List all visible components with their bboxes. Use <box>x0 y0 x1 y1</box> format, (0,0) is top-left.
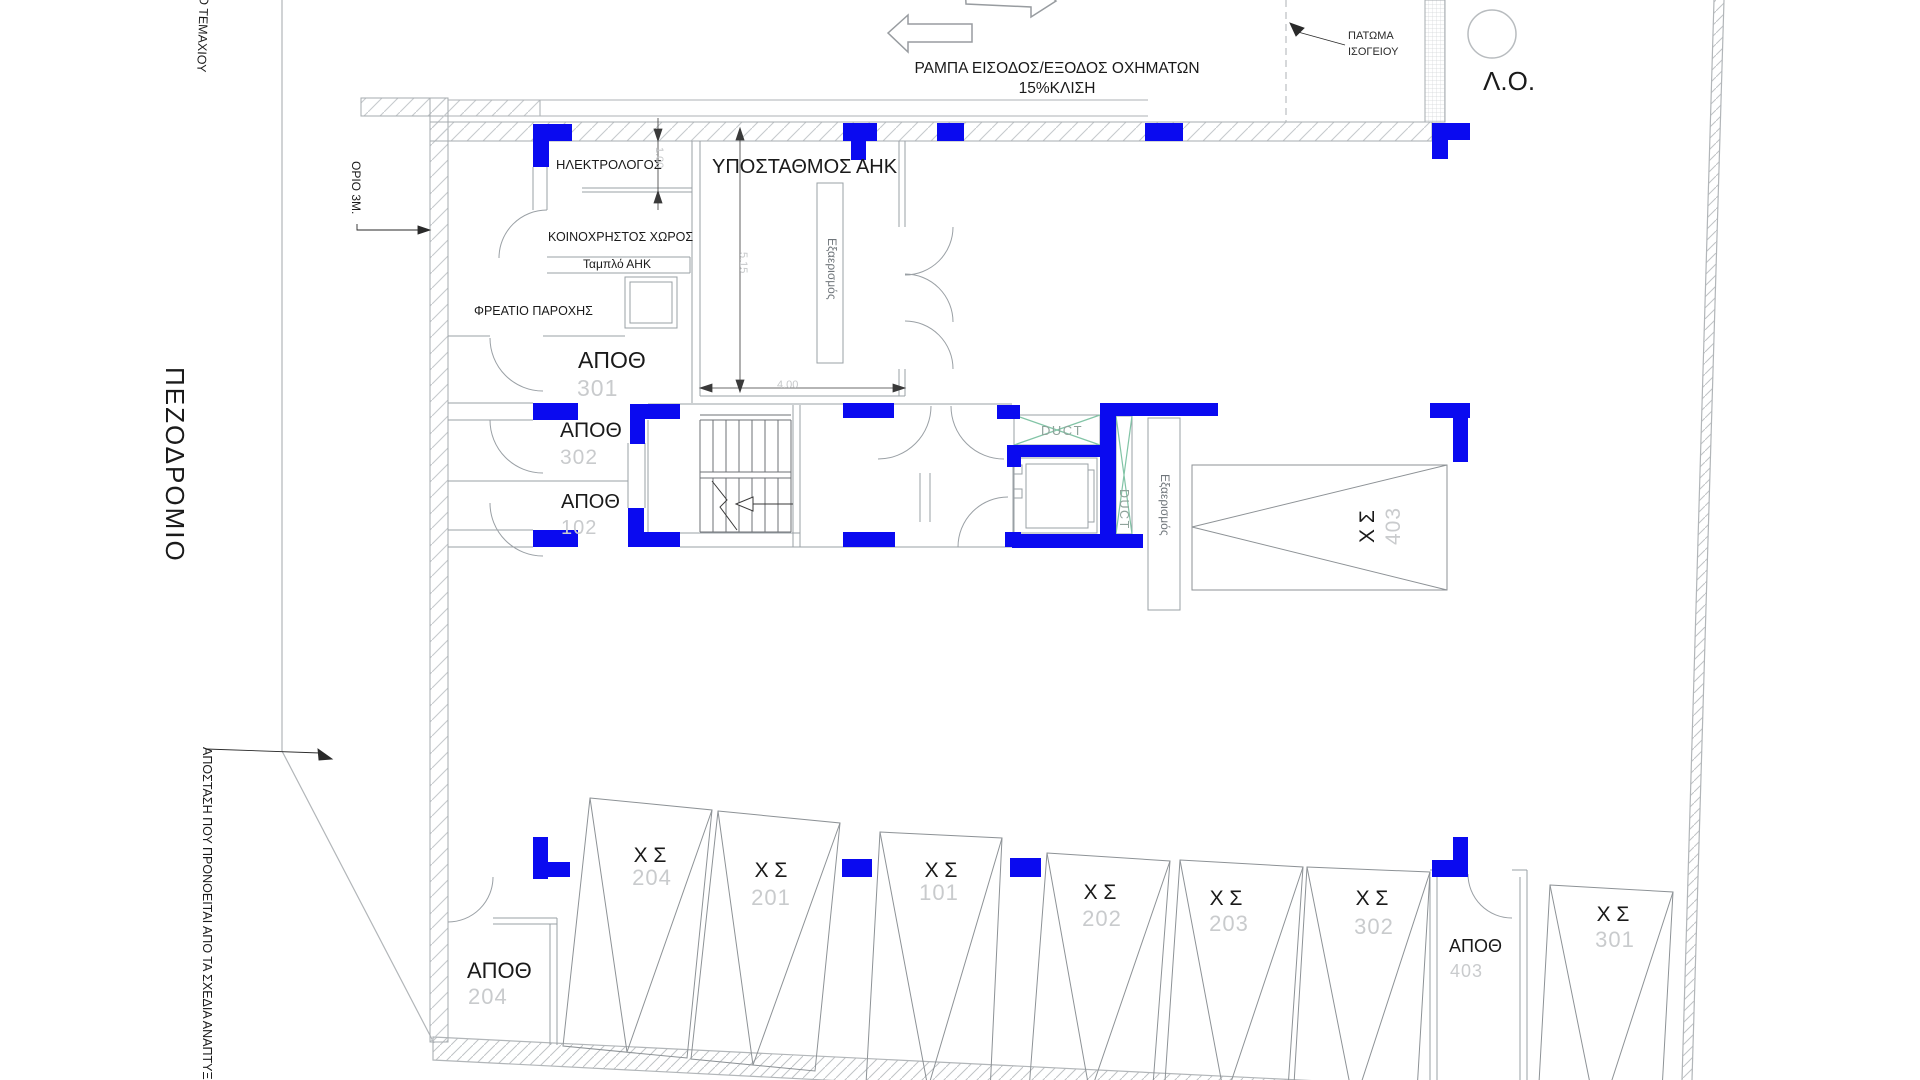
parking-202-label: Χ Σ <box>1084 882 1117 903</box>
vent-label-substation: Εξαερισμός <box>826 238 838 300</box>
storage-301-label: ΑΠΟΘ <box>578 349 646 372</box>
lo-circle <box>1468 10 1516 58</box>
duct-label-vertical: DUCT <box>1118 489 1131 530</box>
parking-403-number: 403 <box>1383 507 1404 545</box>
room-label-substation: ΥΠΟΣΤΑΘΜΟΣ ΑΗΚ <box>712 157 897 177</box>
parking-403-label: Χ Σ <box>1357 510 1378 543</box>
room-label-supply-pit: ΦΡΕΑΤΙΟ ΠΑΡΟΧΗΣ <box>474 305 593 318</box>
parking-203-label: Χ Σ <box>1210 888 1243 909</box>
door-arcs <box>448 210 1512 922</box>
interior-walls <box>448 141 1527 1080</box>
parking-101-label: Χ Σ <box>925 860 958 881</box>
storage-403-number: 403 <box>1450 962 1483 980</box>
room-label-common-area: ΚΟΙΝΟΧΡΗΣΤΟΣ ΧΩΡΟΣ <box>548 231 693 244</box>
dimension-4-00: 4.00 <box>777 380 798 391</box>
parking-203-number: 203 <box>1209 913 1249 935</box>
plan-linework <box>0 0 1920 1080</box>
ramp-arrow-right <box>965 0 1056 17</box>
parking-202-number: 202 <box>1082 908 1122 930</box>
parcel-boundary-label: ΙΟ ΤΕΜΑΧΙΟΥ <box>195 0 210 73</box>
parking-201-label: Χ Σ <box>755 860 788 881</box>
room-label-electrician: ΗΛΕΚΤΡΟΛΟΓΟΣ <box>556 158 662 171</box>
room-label-panel: Ταμπλό ΑΗΚ <box>583 258 651 270</box>
parking-201-number: 201 <box>751 887 791 909</box>
storage-301-number: 301 <box>577 377 618 400</box>
parking-204-number: 204 <box>632 867 672 889</box>
parking-302-label: Χ Σ <box>1356 888 1389 909</box>
storage-102-label: ΑΠΟΘ <box>561 492 620 512</box>
lo-label: Λ.Ο. <box>1483 68 1535 94</box>
parking-301-number: 301 <box>1595 929 1635 951</box>
ground-floor-note-line2: ΙΣΟΓΕΙΟΥ <box>1348 47 1398 58</box>
staircase <box>700 415 793 532</box>
parking-101-number: 101 <box>919 882 959 904</box>
parking-302-number: 302 <box>1354 916 1394 938</box>
parking-204-label: Χ Σ <box>634 845 667 866</box>
dimension-5-15: 5.15 <box>737 252 748 273</box>
exterior-walls <box>361 0 1445 1042</box>
storage-302-label: ΑΠΟΘ <box>560 420 622 441</box>
ramp-label-line2: 15%ΚΛΙΣΗ <box>1019 81 1096 97</box>
duct-label-horizontal: DUCT <box>1041 424 1083 437</box>
storage-302-number: 302 <box>560 447 598 468</box>
parking-301-label: Χ Σ <box>1597 904 1630 925</box>
sidewalk-label: ΠΕΖΟΔΡΟΜΙΟ <box>162 367 188 563</box>
storage-204-label: ΑΠΟΘ <box>467 960 532 982</box>
parking-stalls <box>563 465 1673 1080</box>
ramp-arrow-left <box>888 15 972 52</box>
storage-204-number: 204 <box>468 986 508 1008</box>
storage-102-number: 102 <box>561 518 597 538</box>
storage-403-label: ΑΠΟΘ <box>1449 937 1502 955</box>
vent-label-shaft: Εξαερισμός <box>1159 474 1171 536</box>
ramp-arrows <box>888 0 1516 58</box>
dimension-1-00: 1.00 <box>653 147 664 168</box>
floor-plan: ΡΑΜΠΑ ΕΙΣΟΔΟΣ/ΕΞΟΔΟΣ ΟΧΗΜΑΤΩΝ 15%ΚΛΙΣΗ Π… <box>0 0 1920 1080</box>
ground-floor-note-line1: ΠΑΤΩΜΑ <box>1348 31 1394 42</box>
distance-note-label: ΑΠΟΣΤΑΣΗ ΠΟΥ ΠΡΟΝΟΕΙΤΑΙ ΑΠΟ ΤΑ ΣΧΕΔΙΑ ΑΝ… <box>201 747 214 1080</box>
ramp-label-line1: ΡΑΜΠΑ ΕΙΣΟΔΟΣ/ΕΞΟΔΟΣ ΟΧΗΜΑΤΩΝ <box>914 61 1199 77</box>
offset-3m-label: ΟΡΙΟ 3Μ. <box>350 161 362 214</box>
